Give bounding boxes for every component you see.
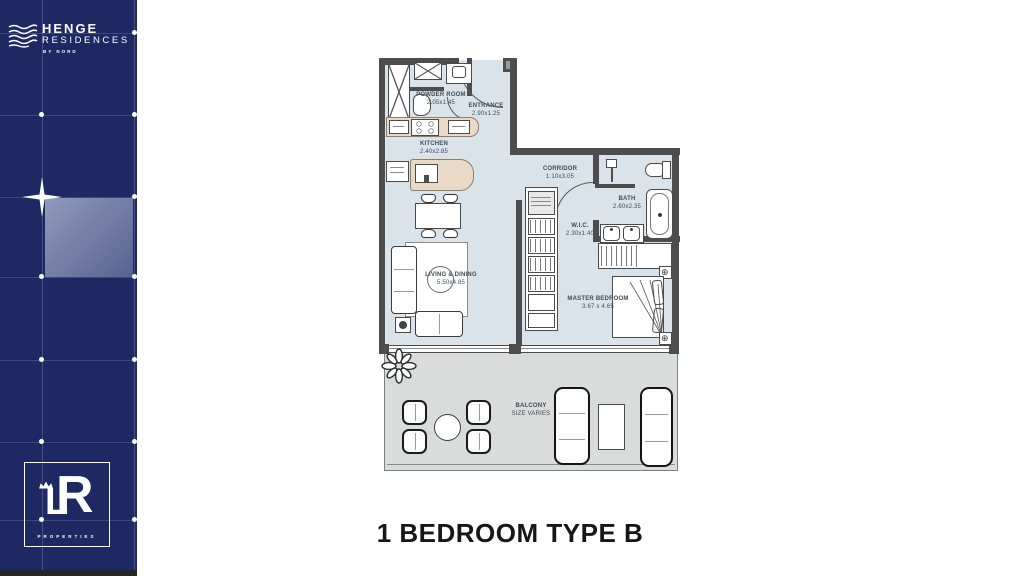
lr-logo-label: PROPERTIES	[25, 534, 109, 539]
hanger-ticks	[530, 277, 553, 290]
henge-logo-sub: RESIDENCES	[42, 35, 130, 47]
balcony-table	[598, 404, 625, 450]
tall-closet	[388, 64, 410, 120]
hanger-ticks	[530, 220, 553, 233]
faucet-dot	[630, 228, 633, 231]
room-label-living: LIVING & DINING 5.50x4.85	[411, 272, 491, 288]
island-faucet	[424, 175, 429, 182]
room-dims: 2.30x1.40	[556, 231, 604, 239]
stove-burners-icon	[412, 119, 438, 136]
grid-line	[0, 442, 137, 443]
henge-logo: HENGE RESIDENCES BY NORD	[8, 22, 134, 54]
room-name: MASTER BEDROOM	[567, 296, 628, 302]
room-name: ENTRANCE	[469, 103, 504, 109]
bath-toilet	[645, 163, 663, 177]
washer-mark	[531, 201, 551, 202]
balcony-chair	[402, 429, 427, 454]
room-dims: 5.50x4.85	[411, 280, 491, 288]
balcony-round-table	[434, 414, 461, 441]
wall-right	[672, 148, 679, 352]
lr-properties-logo: L R PROPERTIES	[24, 462, 110, 547]
wardrobe-divider	[636, 245, 637, 267]
lr-letter-r: R	[56, 469, 94, 521]
room-name: POWDER ROOM	[416, 92, 466, 98]
sparkle-star-icon	[22, 177, 62, 217]
page-root: HENGE RESIDENCES BY NORD L R PROPERTIES	[0, 0, 1024, 576]
grid-line	[0, 360, 137, 361]
cabinet-mark	[390, 172, 404, 173]
powder-sink-basin	[452, 66, 466, 78]
window-wall	[383, 345, 678, 353]
wall-living-wic	[516, 200, 522, 345]
grid-dot	[39, 357, 44, 362]
grid-dot	[132, 517, 137, 522]
wall-corridor-bath-upper	[593, 150, 599, 184]
room-dims: 3.67 x 4.65	[560, 304, 636, 312]
balcony-sofa	[554, 387, 590, 465]
dining-table	[415, 203, 461, 229]
henge-waves-icon	[8, 22, 38, 48]
grid-dot	[132, 439, 137, 444]
grid-dot	[39, 274, 44, 279]
room-label-corridor: CORRIDOR 1.10x3.05	[530, 166, 590, 182]
room-label-balcony: BALCONY SIZE VARIES	[501, 403, 561, 419]
henge-logo-tagline: BY NORD	[43, 49, 130, 54]
wic-shelf	[528, 294, 555, 311]
grid-line	[0, 115, 137, 116]
dining-chair	[443, 229, 458, 238]
utility-box	[414, 62, 442, 80]
room-dims: 1.10x3.05	[530, 174, 590, 182]
grid-dot	[39, 112, 44, 117]
window-post	[509, 344, 521, 354]
bathtub-drain	[658, 213, 662, 217]
room-label-master-bedroom: MASTER BEDROOM 3.67 x 4.65	[560, 296, 636, 312]
cabinet-mark	[393, 126, 404, 127]
wall-shower-divider	[595, 184, 635, 188]
sidebar: HENGE RESIDENCES BY NORD L R PROPERTIES	[0, 0, 137, 576]
room-name: LIVING & DINING	[425, 272, 477, 278]
grid-line	[134, 0, 135, 576]
room-name: BALCONY	[515, 403, 546, 409]
dining-chair	[421, 194, 436, 203]
toilet-tank	[662, 161, 671, 179]
room-dims: 2.40x2.85	[408, 149, 460, 157]
balcony-chair	[402, 400, 427, 425]
wall-left	[379, 58, 385, 350]
room-label-wic: W.I.C. 2.30x1.40	[556, 223, 604, 239]
dining-chair	[443, 194, 458, 203]
hanger-ticks	[530, 239, 553, 252]
room-label-entrance: ENTRANCE 2.90x1.25	[462, 103, 510, 119]
lr-monogram: L R	[25, 467, 109, 527]
washer-mark	[531, 197, 551, 198]
balcony-chair	[466, 400, 491, 425]
washing-machine	[528, 191, 555, 215]
kitchen-cabinet	[389, 120, 409, 134]
sofa-horizontal	[415, 311, 463, 337]
room-dims: SIZE VARIES	[501, 411, 561, 419]
grid-line	[0, 277, 137, 278]
window-glazing-line	[385, 348, 676, 349]
washer-mark	[531, 205, 551, 206]
shower-head	[606, 159, 617, 168]
grid-dot	[39, 439, 44, 444]
room-name: KITCHEN	[420, 141, 448, 147]
wardrobe-hangers	[601, 246, 633, 266]
room-label-kitchen: KITCHEN 2.40x2.85	[408, 141, 460, 157]
balcony-chair	[466, 429, 491, 454]
grid-dot	[132, 274, 137, 279]
faucet-dot	[610, 228, 613, 231]
grid-dot	[132, 112, 137, 117]
nightstand-lamp-icon: ⊕	[661, 334, 669, 343]
balcony-sofa	[640, 387, 673, 467]
room-name: CORRIDOR	[543, 166, 577, 172]
plan-title: 1 BEDROOM TYPE B	[340, 518, 680, 549]
room-dims: 2.90x1.25	[462, 111, 510, 119]
henge-logo-name: HENGE	[42, 22, 130, 35]
room-dims: 2.60x2.35	[600, 204, 654, 212]
sidebar-bottom-bar	[0, 570, 137, 576]
room-label-bath: BATH 2.60x2.35	[600, 196, 654, 212]
wall-powder-bottom	[408, 87, 444, 91]
shower-stem	[611, 168, 613, 182]
hanger-ticks	[530, 258, 553, 271]
window-post	[669, 344, 679, 354]
grid-dot	[132, 194, 137, 199]
grid-dot	[132, 357, 137, 362]
wall-step-vertical	[510, 58, 517, 155]
cabinet-mark	[452, 126, 465, 127]
plant-icon	[381, 348, 417, 384]
room-name: W.I.C.	[571, 223, 589, 229]
cabinet-mark	[390, 167, 404, 168]
dining-chair	[421, 229, 436, 238]
wic-shelf	[528, 313, 555, 328]
room-name: BATH	[618, 196, 635, 202]
kitchen-sink-cabinet	[448, 120, 470, 134]
lamp-icon	[399, 321, 407, 329]
balcony-inner-edge	[387, 464, 675, 465]
